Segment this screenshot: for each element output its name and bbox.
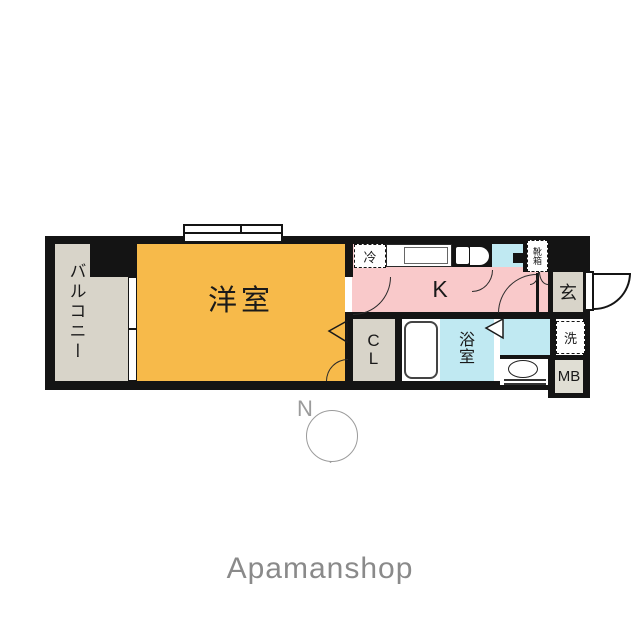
sink-bowl-icon	[470, 247, 489, 265]
meter-box: MB	[555, 360, 583, 393]
western-room-label: 洋室	[137, 243, 345, 353]
bathtub-icon	[404, 321, 438, 379]
toilet-icon	[508, 360, 538, 378]
wall-left	[45, 236, 55, 390]
entrance-label: 玄	[559, 279, 577, 305]
brand-text: Apamanshop	[0, 552, 640, 592]
meter-box-label: MB	[558, 368, 581, 385]
balcony-label: バルコニー	[60, 248, 92, 376]
toilet-base-line	[504, 383, 546, 385]
wall-closet-bath	[395, 319, 402, 381]
compass-icon	[306, 410, 358, 462]
toilet-base-line	[504, 379, 546, 381]
wall-balcony-notch	[90, 243, 137, 277]
room-toilet	[500, 319, 550, 357]
balcony-window-divider	[128, 328, 137, 330]
stove-icon	[404, 247, 448, 264]
wall-kitchen-south	[345, 312, 590, 319]
wall-western-kitchen	[345, 243, 353, 277]
wall-corner-block	[548, 240, 590, 272]
refrigerator-box: 冷	[354, 244, 386, 268]
sink-basin-icon	[456, 247, 469, 264]
kitchen-label: K	[420, 272, 460, 306]
counter-pillar	[513, 253, 523, 263]
shoebox-box: 靴箱	[527, 240, 548, 272]
front-door-arc-icon	[594, 273, 631, 310]
washer-box: 洗	[556, 321, 585, 354]
floorplan-page: 玄 バルコニー 洋室 冷 靴箱 K C L 浴 室 洗 MB	[0, 0, 640, 640]
front-door-leaf	[584, 271, 594, 311]
refrigerator-label: 冷	[363, 247, 376, 266]
room-entrance: 玄	[553, 272, 583, 312]
window-pane-divider	[185, 232, 281, 234]
wall-entrance	[548, 272, 553, 312]
washer-label: 洗	[564, 328, 577, 347]
closet-label: C L	[352, 319, 395, 381]
shoebox-label: 靴箱	[531, 247, 544, 265]
window-pane-tick	[240, 226, 242, 233]
bathroom-label: 浴 室	[440, 319, 494, 381]
